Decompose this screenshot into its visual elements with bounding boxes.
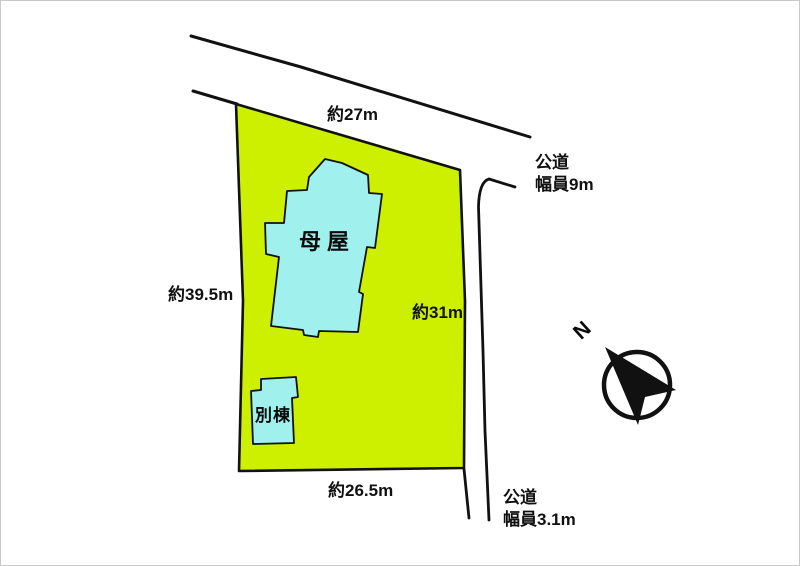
road-right-west-edge-line [464,469,469,518]
road-right-type: 公道 [503,487,576,509]
road-top-type: 公道 [535,152,594,174]
dimension-left-label: 約39.5m [168,284,233,305]
annex-label: 別棟 [255,405,291,426]
dimension-right-label: 約31m [412,302,463,323]
plot-diagram: 約27m 約39.5m 約31m 約26.5m 母屋 別棟 公道 幅員9m 公道… [0,0,800,566]
plot-diagram-canvas [1,1,800,566]
road-top-label: 公道 幅員9m [535,152,594,196]
main-house-label: 母屋 [299,228,355,256]
dimension-bottom-label: 約26.5m [328,480,393,501]
road-right-east-edge-line [479,179,516,520]
road-right-width: 幅員3.1m [503,509,576,531]
road-right-label: 公道 幅員3.1m [503,487,576,531]
road-top-south-edge-line [193,91,237,104]
dimension-top-label: 約27m [327,104,378,125]
road-top-width: 幅員9m [535,174,594,196]
